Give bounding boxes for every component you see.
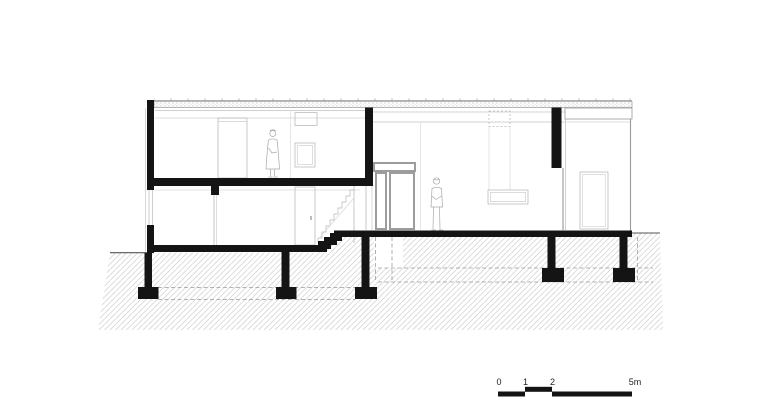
basement-door <box>295 187 315 245</box>
section-drawing: 0 1 2 5m <box>0 0 782 412</box>
scale-segment-0-1 <box>498 392 525 397</box>
section-sheet: 0 1 2 5m <box>0 0 782 412</box>
door-leaf-glass <box>391 174 413 228</box>
foundation-pier <box>282 252 290 287</box>
pier-footing <box>542 268 564 282</box>
foundation-pier <box>620 237 628 268</box>
scale-segment-2-5 <box>552 392 632 397</box>
basement-floor-slab <box>147 245 318 252</box>
roof-insulation-strip <box>154 101 632 107</box>
man-figure-icon <box>431 178 443 230</box>
upper-window <box>295 143 315 167</box>
foundation-pier <box>362 237 370 287</box>
scale-segment-1-2 <box>525 387 552 392</box>
pier-footing <box>138 287 159 299</box>
main-floor-slab <box>337 231 632 238</box>
wall-niche-inner <box>491 193 526 202</box>
clerestory-beam <box>552 108 562 169</box>
upper-floor-slab <box>147 178 373 186</box>
wall-niche <box>488 190 528 204</box>
scale-label-1: 1 <box>523 377 528 387</box>
pier-footing <box>613 268 635 282</box>
scale-label-0: 0 <box>496 377 501 387</box>
scale-label-5m: 5m <box>629 377 642 387</box>
left-wall-upper <box>147 100 154 190</box>
sidelite-glass <box>377 174 385 228</box>
scale-bar: 0 1 2 5m <box>496 377 641 397</box>
roof-fastener-ticks <box>154 98 632 101</box>
upper-high-window <box>295 113 317 126</box>
mid-wall <box>365 108 373 187</box>
transom-glass <box>375 164 414 170</box>
upper-window-inner <box>298 146 313 165</box>
partition-header <box>211 186 219 195</box>
upper-door-opening <box>218 118 247 178</box>
scale-label-2: 2 <box>550 377 555 387</box>
right-room-door-inner <box>583 175 606 227</box>
foundation-pier <box>145 253 153 287</box>
right-room-door <box>580 172 608 229</box>
entrance-door-assembly <box>373 162 416 230</box>
skylight-dashed <box>489 111 510 127</box>
pier-footing <box>276 287 297 299</box>
foundation-void <box>374 237 403 268</box>
pier-footing <box>355 287 377 299</box>
roof-fascia-right <box>565 108 632 119</box>
woman-figure-icon <box>266 130 280 177</box>
foundation-pier <box>548 237 556 268</box>
